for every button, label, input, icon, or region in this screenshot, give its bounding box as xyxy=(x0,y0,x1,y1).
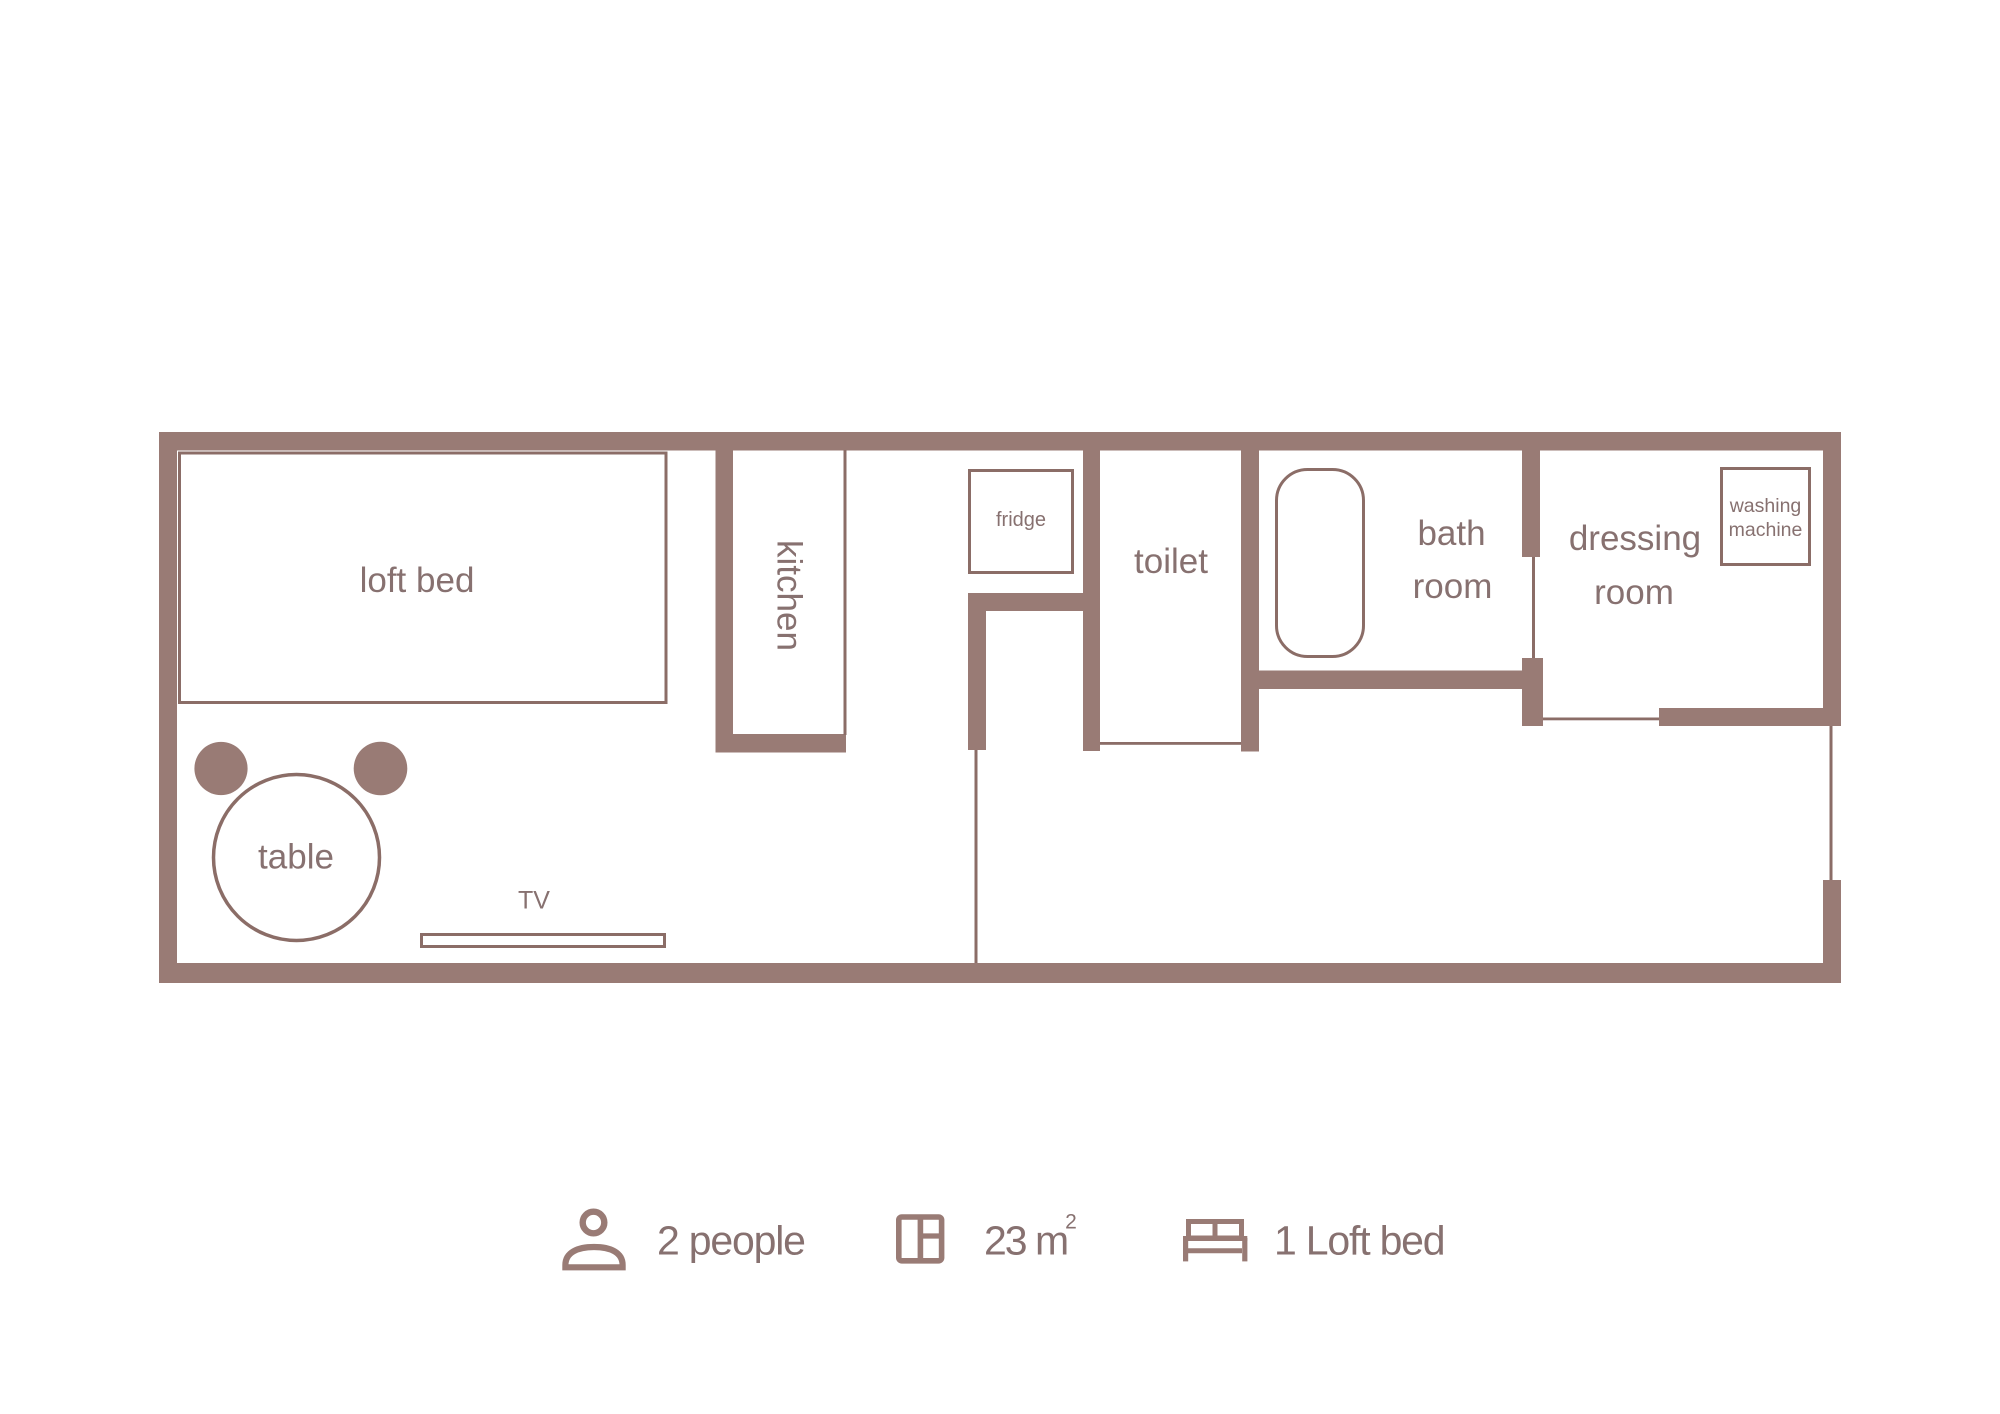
svg-text:room: room xyxy=(1413,567,1493,606)
svg-text:TV: TV xyxy=(518,887,550,915)
svg-text:room: room xyxy=(1594,573,1674,612)
svg-text:23 m2: 23 m2 xyxy=(984,1211,1076,1264)
svg-text:kitchen: kitchen xyxy=(770,540,809,651)
svg-text:dressing: dressing xyxy=(1569,519,1701,558)
svg-text:table: table xyxy=(258,838,334,877)
svg-text:washing: washing xyxy=(1729,495,1802,517)
svg-text:2 people: 2 people xyxy=(657,1218,805,1264)
svg-text:1 Loft bed: 1 Loft bed xyxy=(1274,1218,1444,1264)
svg-text:toilet: toilet xyxy=(1134,542,1208,581)
svg-text:loft bed: loft bed xyxy=(360,561,475,600)
svg-text:fridge: fridge xyxy=(996,509,1046,531)
svg-text:bath: bath xyxy=(1417,514,1485,553)
svg-text:machine: machine xyxy=(1729,519,1803,541)
